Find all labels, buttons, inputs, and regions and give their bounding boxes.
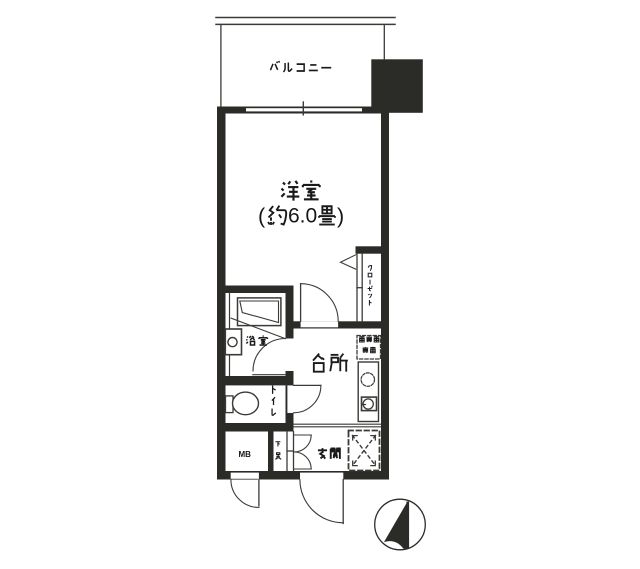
svg-text:): ) [337,204,344,228]
svg-text:(: ( [258,204,266,228]
svg-text:6.0: 6.0 [288,205,317,228]
svg-text:MB: MB [239,450,252,459]
